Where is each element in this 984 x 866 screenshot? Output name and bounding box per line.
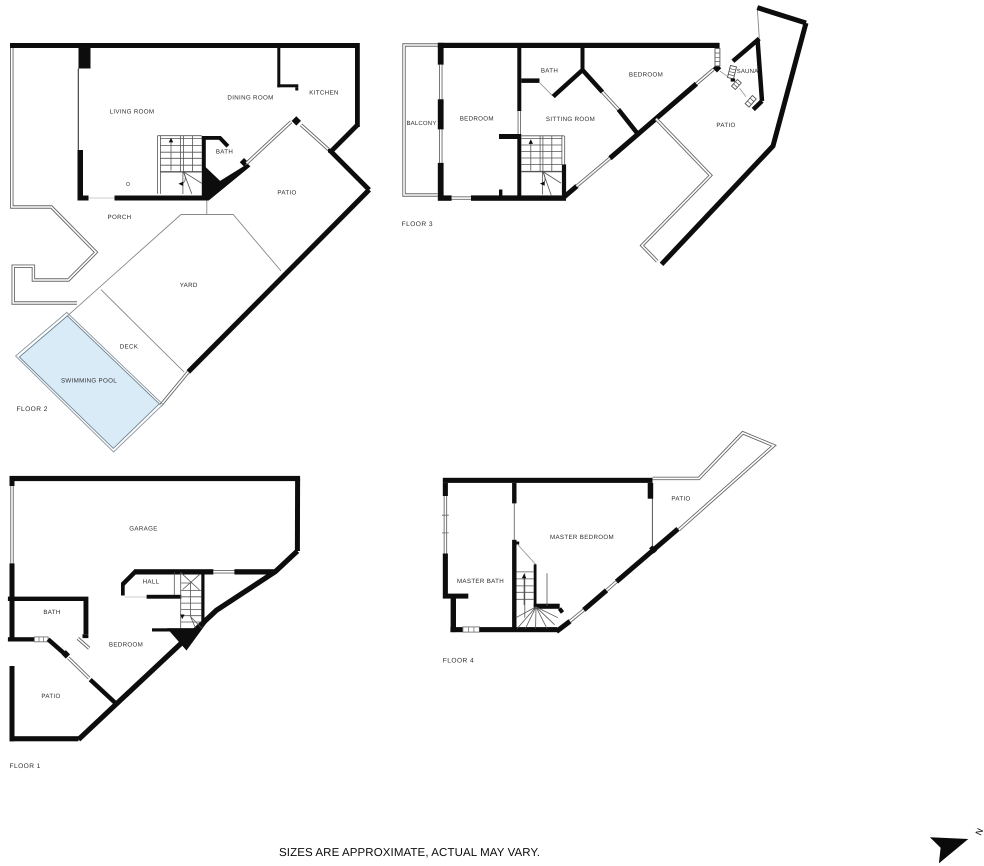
svg-text:PATIO: PATIO xyxy=(671,496,690,503)
svg-text:BATH: BATH xyxy=(216,149,233,156)
svg-text:SITTING ROOM: SITTING ROOM xyxy=(546,116,595,123)
svg-text:GARAGE: GARAGE xyxy=(129,526,157,533)
svg-text:PATIO: PATIO xyxy=(41,693,60,700)
svg-text:BEDROOM: BEDROOM xyxy=(460,116,494,123)
svg-text:SIZES ARE APPROXIMATE, ACTUAL: SIZES ARE APPROXIMATE, ACTUAL MAY VARY. xyxy=(279,847,540,859)
svg-text:DECK: DECK xyxy=(120,344,139,351)
svg-text:DINING ROOM: DINING ROOM xyxy=(227,95,273,102)
svg-text:PORCH: PORCH xyxy=(108,214,132,221)
svg-text:BATH: BATH xyxy=(541,68,558,75)
svg-text:BALCONY: BALCONY xyxy=(406,120,436,127)
svg-text:MASTER BATH: MASTER BATH xyxy=(457,578,504,585)
svg-text:N: N xyxy=(973,827,984,837)
svg-text:KITCHEN: KITCHEN xyxy=(309,90,338,97)
svg-text:PATIO: PATIO xyxy=(716,122,735,129)
svg-text:SAUNA: SAUNA xyxy=(737,68,759,75)
svg-text:HALL: HALL xyxy=(143,578,160,585)
svg-text:FLOOR 2: FLOOR 2 xyxy=(17,406,48,413)
svg-text:SWIMMING POOL: SWIMMING POOL xyxy=(61,378,117,385)
svg-text:BEDROOM: BEDROOM xyxy=(109,641,143,648)
svg-text:BEDROOM: BEDROOM xyxy=(629,71,663,78)
svg-text:MASTER BEDROOM: MASTER BEDROOM xyxy=(550,534,614,541)
svg-text:YARD: YARD xyxy=(180,282,198,289)
svg-text:FLOOR 3: FLOOR 3 xyxy=(402,221,433,228)
svg-text:BATH: BATH xyxy=(43,609,60,616)
svg-text:FLOOR 4: FLOOR 4 xyxy=(443,657,474,664)
svg-text:LIVING ROOM: LIVING ROOM xyxy=(110,109,155,116)
svg-text:PATIO: PATIO xyxy=(277,189,296,196)
svg-text:FLOOR 1: FLOOR 1 xyxy=(10,763,41,770)
